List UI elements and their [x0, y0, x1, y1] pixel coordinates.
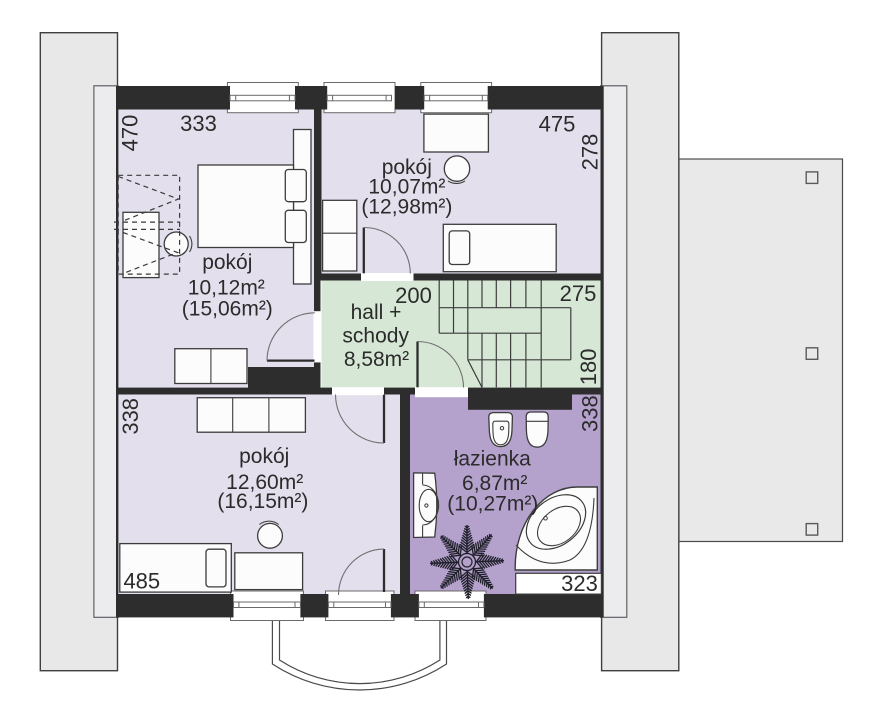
- svg-text:333: 333: [180, 111, 217, 136]
- svg-text:pokój: pokój: [239, 445, 289, 468]
- svg-text:485: 485: [123, 568, 160, 593]
- svg-text:schody: schody: [342, 325, 409, 348]
- svg-text:275: 275: [560, 281, 597, 306]
- svg-text:(16,15m²): (16,15m²): [217, 490, 308, 513]
- svg-text:475: 475: [539, 111, 576, 136]
- svg-text:470: 470: [118, 115, 143, 152]
- svg-text:10,12m²: 10,12m²: [188, 277, 265, 300]
- svg-text:pokój: pokój: [202, 251, 252, 274]
- svg-text:278: 278: [577, 134, 602, 171]
- svg-text:200: 200: [395, 283, 432, 308]
- svg-text:323: 323: [561, 571, 598, 596]
- svg-text:(12,98m²): (12,98m²): [361, 196, 452, 219]
- svg-text:8,58m²: 8,58m²: [344, 348, 409, 371]
- svg-text:338: 338: [118, 398, 143, 435]
- svg-text:łazienka: łazienka: [454, 448, 531, 471]
- svg-text:180: 180: [576, 349, 601, 386]
- svg-text:(10,27m²): (10,27m²): [447, 492, 538, 515]
- svg-text:hall +: hall +: [351, 301, 402, 324]
- svg-text:(15,06m²): (15,06m²): [182, 297, 273, 320]
- svg-text:338: 338: [578, 395, 603, 432]
